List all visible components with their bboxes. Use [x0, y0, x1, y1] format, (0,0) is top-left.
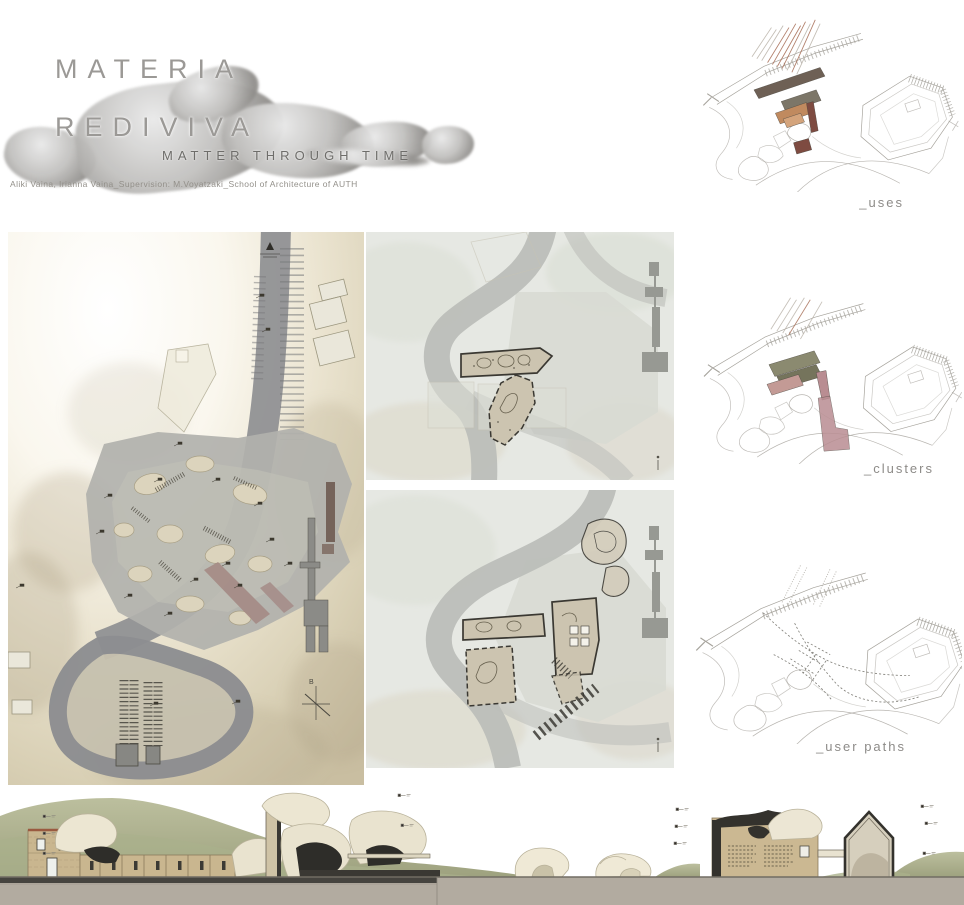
gabled-section [845, 812, 893, 877]
sectioned-building-right [712, 809, 845, 877]
diagram-label-user-paths: _user paths [816, 739, 906, 754]
title-block: MATERIA REDIVIVA MATTER THROUGH TIME Ali… [10, 30, 480, 205]
clusters-volumes [767, 351, 850, 451]
uses-diagram-drawing [686, 12, 962, 192]
poster-subtitle: MATTER THROUGH TIME [162, 148, 413, 163]
cluster-plan-lower-drawing [366, 490, 674, 768]
poster-title-line2: REDIVIVA [55, 112, 259, 143]
section-drawing [0, 790, 964, 905]
metal-blob-artwork [422, 126, 474, 164]
user-paths-diagram-drawing [690, 550, 962, 744]
uses-annotation-ticks [752, 20, 820, 74]
poster-title-line1: MATERIA [55, 54, 243, 85]
cluster-plan-upper [366, 232, 674, 480]
axonometric-diagram-user-paths: _user paths [690, 550, 962, 762]
cluster-plan-lower [366, 490, 674, 768]
compass-letter: B [309, 679, 314, 686]
diagram-label-uses: _uses [859, 195, 904, 210]
cluster-plan-upper-drawing [366, 232, 674, 480]
diagram-label-clusters: _clusters [864, 461, 934, 476]
masterplan-site-plan: B [8, 232, 364, 785]
user-path-lines [763, 613, 920, 702]
axonometric-diagram-uses: _uses [686, 12, 962, 210]
clusters-diagram-drawing [690, 282, 962, 464]
axonometric-diagram-clusters: _clusters [690, 282, 962, 482]
masterplan-drawing: B [8, 232, 364, 785]
section-ground [0, 877, 964, 905]
poster-credits: Aliki Vaina, Irianna Vaina_Supervision: … [10, 179, 358, 189]
longitudinal-section [0, 790, 964, 905]
rock-formations-middle [515, 848, 651, 877]
clusters-annotation-ticks [771, 298, 822, 339]
presentation-board: MATERIA REDIVIVA MATTER THROUGH TIME Ali… [0, 0, 964, 905]
